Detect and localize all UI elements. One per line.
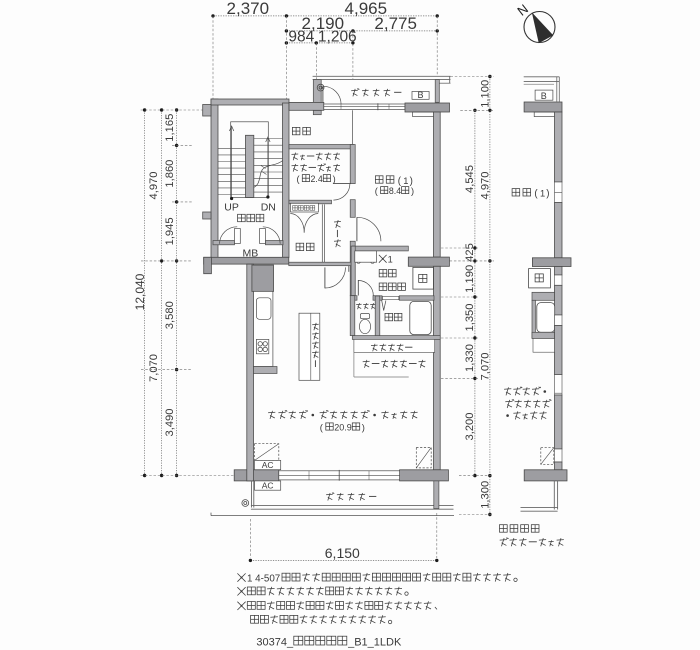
svg-text:1,300: 1,300 xyxy=(479,481,491,509)
svg-text:1: 1 xyxy=(403,176,408,186)
svg-text:MB: MB xyxy=(243,247,259,259)
svg-text:1,860: 1,860 xyxy=(164,160,176,188)
svg-text:1,190: 1,190 xyxy=(464,265,476,293)
svg-text:7,070: 7,070 xyxy=(479,353,491,381)
svg-text:1,165: 1,165 xyxy=(164,114,176,142)
svg-text:1,330: 1,330 xyxy=(464,344,476,372)
svg-text:1: 1 xyxy=(540,189,545,199)
svg-text:1: 1 xyxy=(388,255,393,265)
svg-text:4,545: 4,545 xyxy=(464,165,476,193)
svg-text:3,200: 3,200 xyxy=(464,413,476,441)
svg-text:UP: UP xyxy=(224,201,239,213)
svg-text:): ) xyxy=(546,189,549,200)
svg-text:_B1_1LDK: _B1_1LDK xyxy=(347,637,402,649)
svg-text:7,070: 7,070 xyxy=(148,354,160,382)
svg-text:4,970: 4,970 xyxy=(148,172,160,200)
svg-text:AC: AC xyxy=(262,481,274,491)
svg-text:30374_: 30374_ xyxy=(256,637,294,649)
svg-text:): ) xyxy=(333,174,336,184)
svg-text:1,100: 1,100 xyxy=(479,80,491,108)
svg-text:): ) xyxy=(362,423,365,434)
svg-text:1,350: 1,350 xyxy=(464,304,476,332)
svg-text:12,040: 12,040 xyxy=(133,273,147,310)
svg-text:6,150: 6,150 xyxy=(325,545,360,561)
svg-text:): ) xyxy=(410,176,413,187)
svg-text:984: 984 xyxy=(288,28,314,45)
svg-text:20.9: 20.9 xyxy=(334,423,352,433)
svg-text:2,775: 2,775 xyxy=(374,14,417,33)
svg-text:8.4: 8.4 xyxy=(389,186,401,196)
svg-text:B: B xyxy=(541,91,547,101)
svg-text:2.4: 2.4 xyxy=(311,174,323,184)
svg-text:1,206: 1,206 xyxy=(318,28,357,45)
svg-text:425: 425 xyxy=(464,243,476,262)
svg-text:AC: AC xyxy=(262,460,274,470)
svg-text:B: B xyxy=(417,90,423,100)
svg-text:2,370: 2,370 xyxy=(227,0,270,18)
svg-text:3,580: 3,580 xyxy=(164,301,176,329)
svg-text:3,490: 3,490 xyxy=(164,409,176,437)
svg-text:DN: DN xyxy=(261,201,276,213)
svg-text:4,970: 4,970 xyxy=(479,172,491,200)
svg-text:): ) xyxy=(411,186,414,196)
svg-text:1,945: 1,945 xyxy=(164,217,176,245)
svg-text:1 4-507: 1 4-507 xyxy=(247,574,280,585)
